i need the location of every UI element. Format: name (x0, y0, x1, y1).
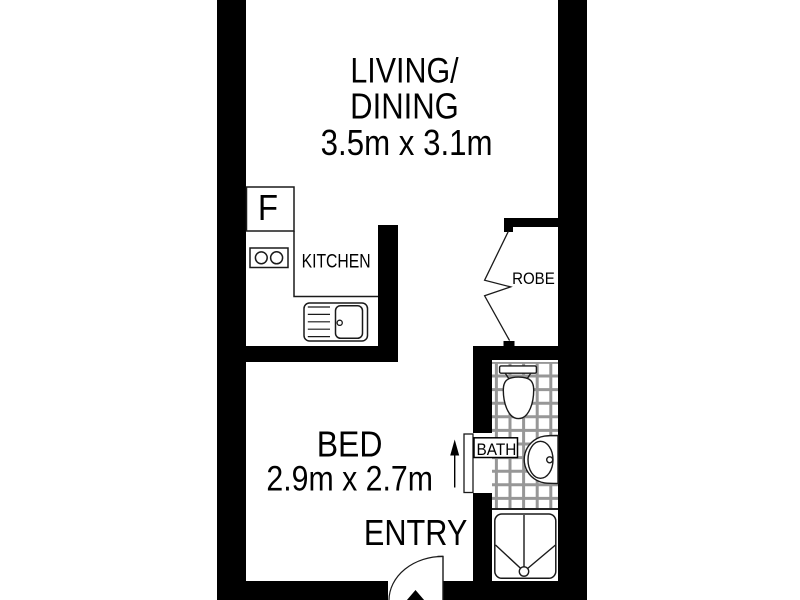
svg-text:F: F (258, 189, 278, 229)
svg-text:2.9m x 2.7m: 2.9m x 2.7m (266, 459, 433, 499)
svg-text:DINING: DINING (350, 86, 459, 127)
svg-text:ROBE: ROBE (512, 269, 555, 288)
svg-text:KITCHEN: KITCHEN (302, 250, 371, 272)
svg-text:3.5m x 3.1m: 3.5m x 3.1m (321, 123, 493, 164)
svg-text:ENTRY: ENTRY (364, 513, 467, 554)
svg-text:LIVING/: LIVING/ (350, 50, 459, 89)
svg-text:BATH: BATH (476, 441, 516, 460)
